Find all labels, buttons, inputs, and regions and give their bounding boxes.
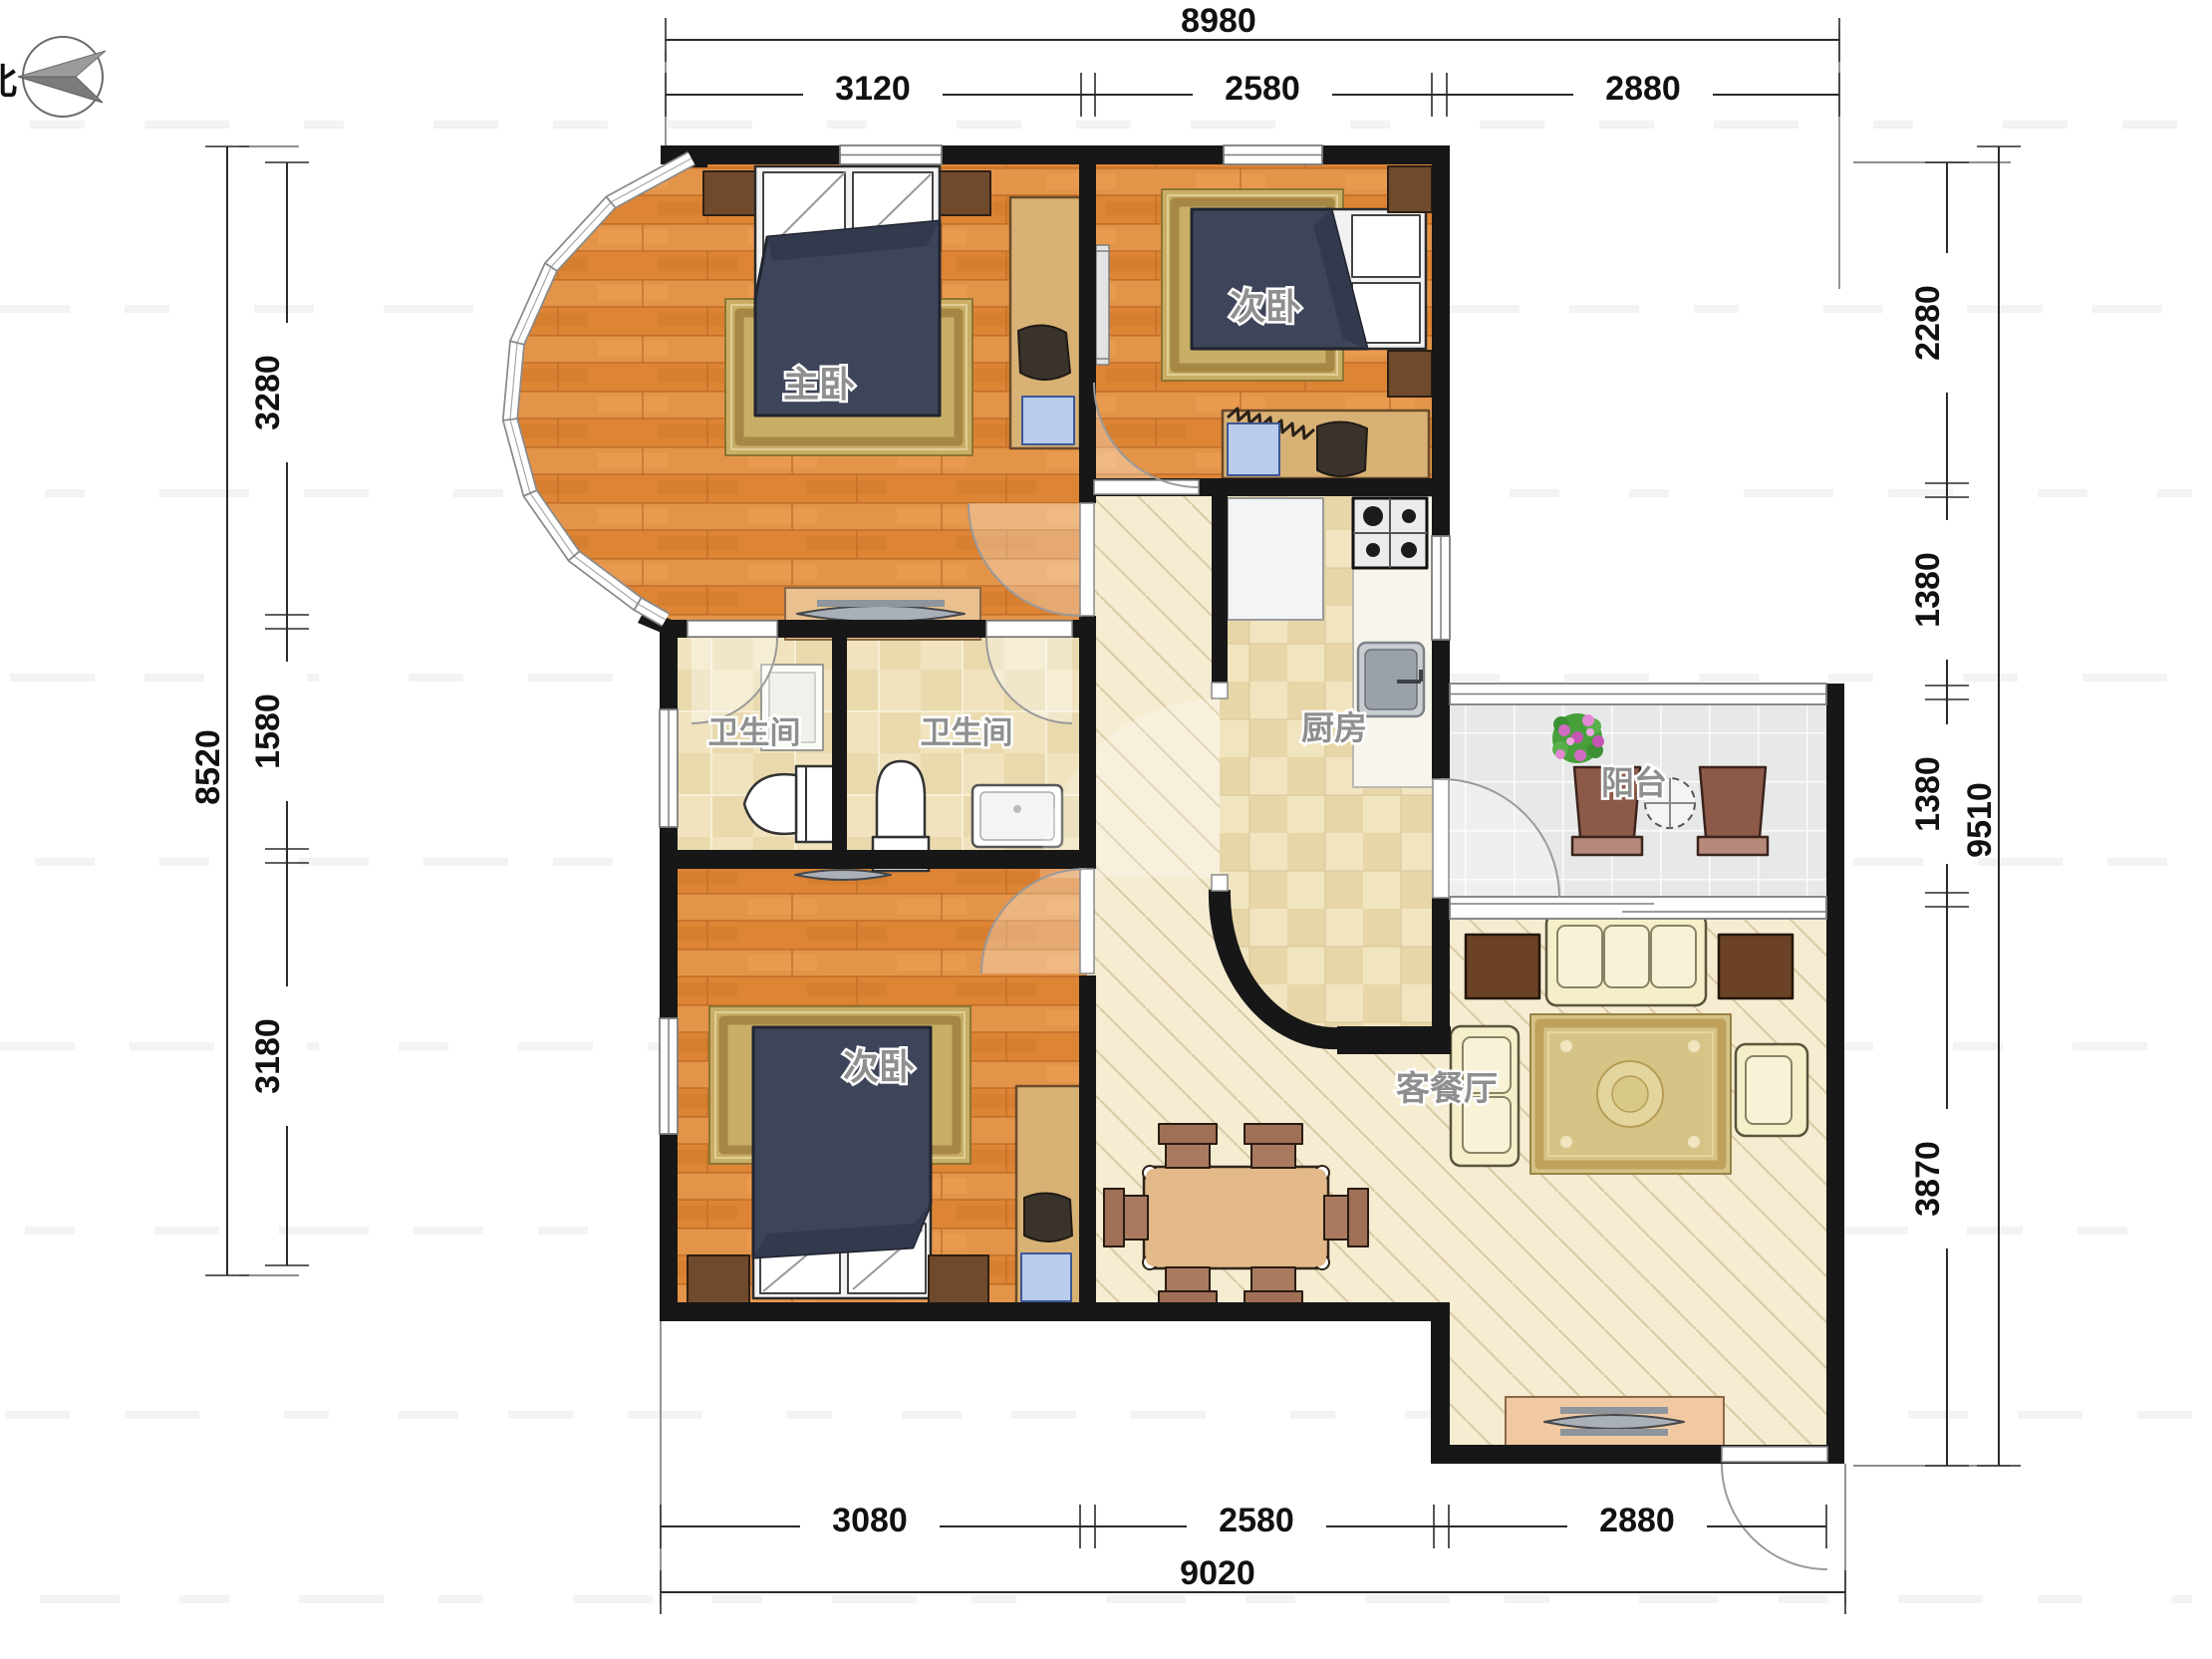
svg-text:次卧: 次卧	[843, 1046, 915, 1087]
svg-text:3280: 3280	[249, 355, 287, 430]
svg-text:1380: 1380	[1909, 552, 1947, 628]
svg-text:2880: 2880	[1599, 1502, 1675, 1539]
svg-text:2580: 2580	[1219, 1502, 1294, 1539]
svg-text:北: 北	[0, 61, 17, 102]
svg-text:3870: 3870	[1909, 1141, 1947, 1217]
svg-text:1380: 1380	[1909, 756, 1947, 832]
svg-text:2580: 2580	[1225, 70, 1300, 108]
svg-text:次卧: 次卧	[1230, 286, 1301, 327]
svg-text:卫生间: 卫生间	[708, 715, 801, 750]
svg-text:2880: 2880	[1605, 70, 1681, 108]
svg-text:8520: 8520	[189, 729, 227, 805]
svg-text:9020: 9020	[1180, 1554, 1255, 1592]
svg-text:客餐厅: 客餐厅	[1396, 1069, 1498, 1108]
svg-text:主卧: 主卧	[783, 364, 855, 405]
svg-text:1580: 1580	[249, 693, 287, 769]
svg-text:3120: 3120	[835, 70, 911, 108]
svg-text:阳台: 阳台	[1601, 764, 1667, 801]
svg-text:3080: 3080	[832, 1502, 908, 1539]
svg-text:厨房: 厨房	[1301, 709, 1367, 746]
svg-text:8980: 8980	[1181, 2, 1256, 40]
svg-text:3180: 3180	[249, 1018, 287, 1094]
svg-text:2280: 2280	[1909, 285, 1947, 361]
svg-text:卫生间: 卫生间	[921, 715, 1013, 750]
